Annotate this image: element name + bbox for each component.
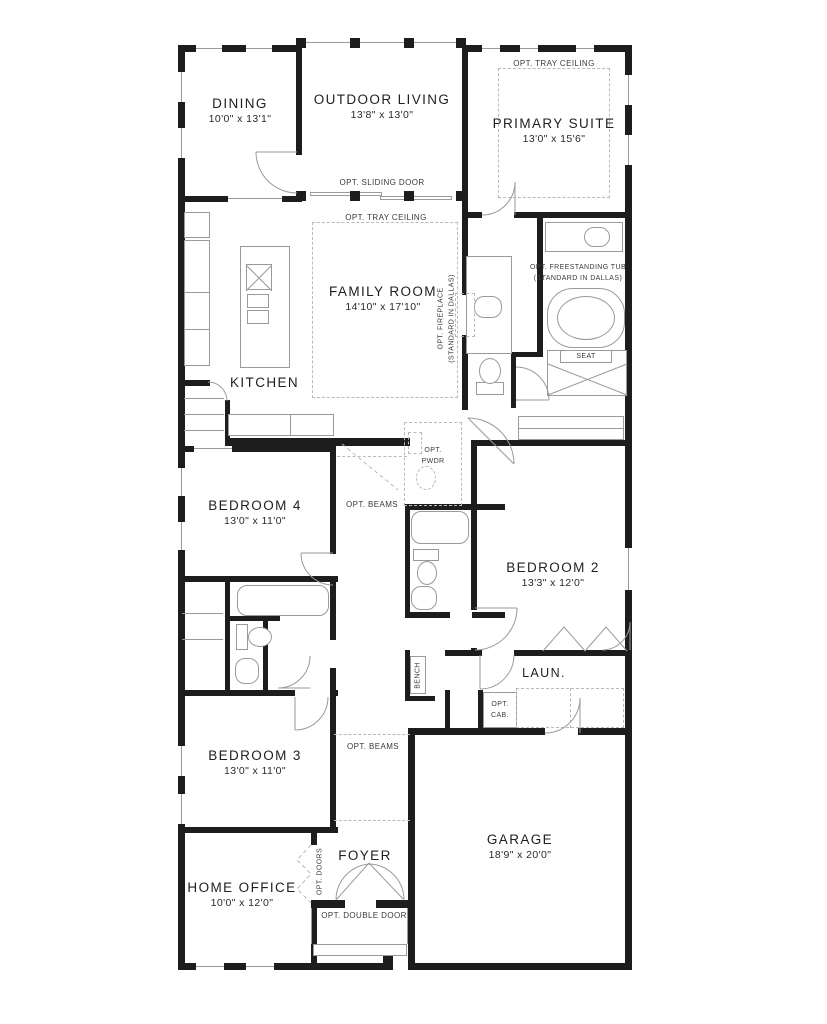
cooktop-icon [246,264,272,290]
wall [232,446,336,452]
entry-door-arc [369,864,404,899]
wall [511,352,516,408]
entry-door-arc [336,864,371,899]
pantry-shelf [184,430,224,431]
cased-opening [228,198,282,199]
wall [445,650,482,656]
room-label-bedroom2: BEDROOM 2 13'3" x 12'0" [476,560,630,590]
pantry-shelf [184,398,224,399]
cabinet-icon [247,294,269,308]
room-name: BEDROOM 3 [180,748,330,765]
room-dims: 10'0" x 12'0" [172,897,312,910]
room-dims: 13'3" x 12'0" [476,577,630,590]
window [178,128,185,158]
entry-door-leaf [369,863,404,900]
opt-tub-note: OPT. FREESTANDING TUB (STANDARD IN DALLA… [520,263,636,284]
window [178,794,185,824]
room-dims: 13'0" x 15'6" [483,133,625,146]
room-dims: 13'8" x 13'0" [302,109,462,122]
opt-beam-diagonal [342,444,398,490]
toilet-icon [416,466,436,490]
wall [472,612,505,618]
wall [514,650,632,656]
wall [376,900,408,908]
tub-icon [411,511,469,544]
opt-tray-ceiling-note: OPT. TRAY CEILING [313,213,459,222]
window [482,45,500,52]
post [404,191,414,201]
room-label-foyer: FOYER [320,848,410,865]
note-line: (STANDARD IN DALLAS) [447,260,458,378]
room-label-garage: GARAGE 18'9" x 20'0" [450,832,590,862]
wall [462,45,468,217]
wall [471,440,632,446]
opt-doors-note: OPT. DOORS [317,838,324,906]
bifold-doors-icon [543,627,627,651]
room-label-bedroom3: BEDROOM 3 13'0" x 11'0" [180,748,330,778]
post [404,38,414,48]
sink-icon [474,296,502,318]
wall [578,728,632,735]
opt-beams-note: OPT. BEAMS [334,500,410,509]
sink-icon [584,227,610,247]
room-name: LAUN. [508,666,580,682]
wall [405,504,410,618]
door-arc [295,697,328,730]
wall [445,690,450,732]
room-dims: 18'9" x 20'0" [450,849,590,862]
toilet-tank [236,624,248,650]
room-dims: 13'0" x 11'0" [180,765,330,778]
window [246,963,274,970]
range-icon [184,292,210,330]
room-label-dining: DINING 10'0" x 13'1" [170,96,310,126]
door-arc [256,152,297,193]
room-dims: 13'0" x 11'0" [180,515,330,528]
note-line: OPT. FIREPLACE [437,260,448,378]
wall [178,690,295,696]
patio-edge [300,42,462,43]
opt-fireplace-note: OPT. FIREPLACE (STANDARD IN DALLAS) [437,260,458,378]
room-name: BEDROOM 4 [180,498,330,515]
wall [408,728,545,735]
wall [228,438,410,446]
wall [178,380,210,386]
wall [330,668,336,692]
room-label-laundry: LAUN. [508,666,580,682]
opt-beams-note: OPT. BEAMS [334,742,412,751]
wall [282,196,302,202]
wall [225,580,230,692]
floor-plan: DINING 10'0" x 13'1" OUTDOOR LIVING 13'8… [0,0,827,1024]
entry-door-leaf [336,863,369,900]
toilet-icon [417,561,437,585]
toilet-icon [248,627,272,647]
window [246,45,272,52]
bench-note: BENCH [415,648,422,704]
closet-rod [518,428,624,429]
wall [330,582,336,640]
room-name: FOYER [320,848,410,865]
window [196,963,224,970]
opt-tray-ceiling-note: OPT. TRAY CEILING [484,59,624,68]
cased-opening [194,448,232,449]
opt-beam-line [334,820,410,821]
wall [408,963,632,970]
window [625,75,632,105]
room-name: HOME OFFICE [172,880,312,897]
window [520,45,538,52]
window [196,45,222,52]
room-name: DINING [170,96,310,113]
room-label-primary-suite: PRIMARY SUITE 13'0" x 15'6" [483,116,625,146]
note-line: (STANDARD IN DALLAS) [520,274,636,285]
wall [330,690,336,833]
porch-edge [311,908,312,944]
room-label-home-office: HOME OFFICE 10'0" x 12'0" [172,880,312,910]
room-label-bedroom4: BEDROOM 4 13'0" x 11'0" [180,498,330,528]
opt-double-door-note: OPT. DOUBLE DOOR [314,911,414,920]
porch-step [313,944,407,956]
room-name: GARAGE [450,832,590,849]
counter-divider [290,414,291,436]
room-label-kitchen: KITCHEN [230,375,340,392]
room-name: PRIMARY SUITE [483,116,625,133]
wall [625,45,632,970]
shower-seat-note: SEAT [560,353,612,360]
note-line: PWDR [404,457,462,468]
toilet-tank [413,549,439,561]
tub-icon [237,585,329,616]
washer-dryer-divider [570,688,571,728]
post [350,38,360,48]
wall [405,612,450,618]
tub-basin [557,296,615,340]
counter [228,414,334,436]
closet-shelf [182,639,223,640]
wall [225,616,280,621]
opt-beam-line [334,734,410,735]
room-name: BEDROOM 2 [476,560,630,577]
room-name: KITCHEN [230,375,340,392]
toilet-icon [479,358,501,384]
closet-shelf [182,613,223,614]
wall [178,576,338,582]
cabinet-icon [247,310,269,324]
sliding-door-panel [380,196,452,200]
note-line: OPT. FREESTANDING TUB [520,263,636,274]
wall [178,196,228,202]
counter [184,212,210,238]
note-line: CAB. [484,711,516,722]
door-arc [278,656,310,688]
pantry-shelf [184,414,224,415]
door-arc [516,367,549,400]
sink-icon [235,658,259,684]
opt-beam-line [337,456,407,457]
wall [537,215,543,357]
wall [514,212,632,218]
window [625,135,632,165]
post [350,191,360,201]
note-line: OPT. [484,700,516,711]
wall [178,446,194,452]
note-line: OPT. [404,446,462,457]
sink-icon [411,586,437,610]
sliding-door-panel [310,192,382,196]
window [576,45,594,52]
opt-sliding-door-note: OPT. SLIDING DOOR [312,178,452,187]
room-dims: 10'0" x 13'1" [170,113,310,126]
opt-cab-note: OPT. CAB. [484,700,516,721]
opt-pwdr-note: OPT. PWDR [404,446,462,467]
room-name: OUTDOOR LIVING [302,92,462,109]
room-label-outdoor-living: OUTDOOR LIVING 13'8" x 13'0" [302,92,462,122]
window [178,468,185,496]
